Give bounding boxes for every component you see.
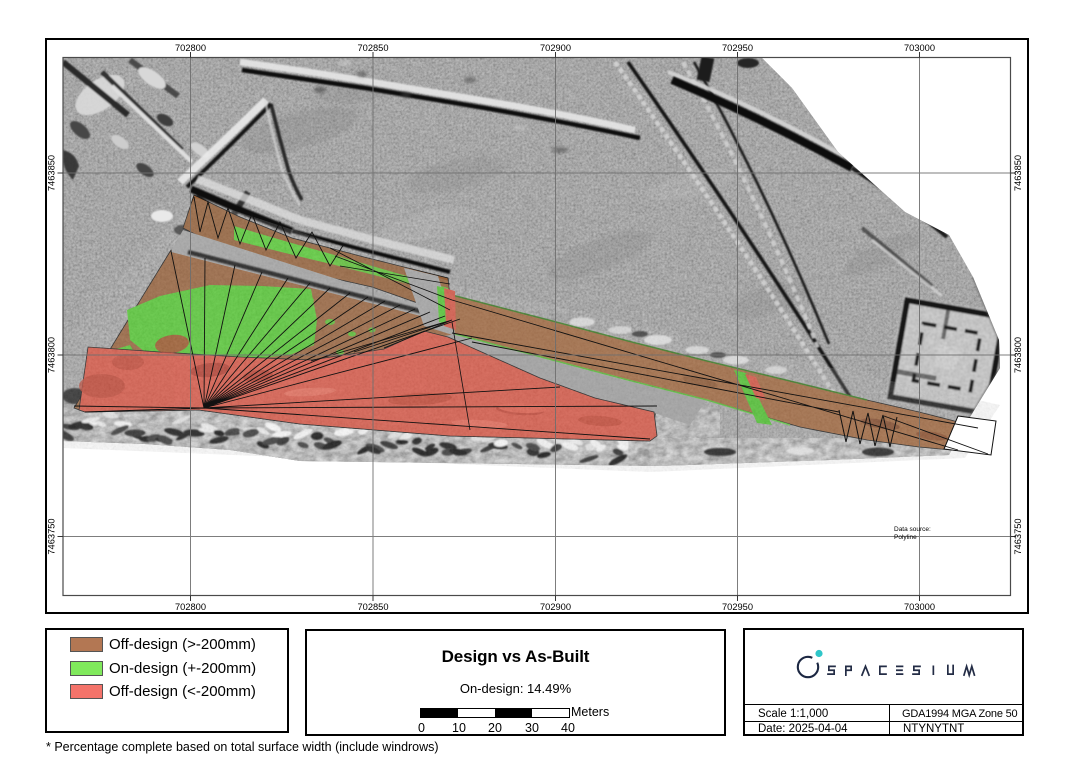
svg-text:7463850: 7463850 <box>47 155 57 191</box>
svg-text:702900: 702900 <box>540 602 571 612</box>
svg-text:702950: 702950 <box>722 602 753 612</box>
svg-text:702850: 702850 <box>357 43 388 53</box>
svg-text:702800: 702800 <box>175 602 206 612</box>
svg-text:7463800: 7463800 <box>1013 337 1023 373</box>
svg-text:703000: 703000 <box>904 43 935 53</box>
svg-text:703000: 703000 <box>904 602 935 612</box>
svg-text:Polyline: Polyline <box>894 534 917 541</box>
svg-text:7463750: 7463750 <box>1013 518 1023 554</box>
svg-text:Data source:: Data source: <box>894 526 931 533</box>
svg-text:702950: 702950 <box>722 43 753 53</box>
svg-text:702850: 702850 <box>357 602 388 612</box>
svg-text:7463850: 7463850 <box>1013 155 1023 191</box>
svg-text:702900: 702900 <box>540 43 571 53</box>
svg-text:7463800: 7463800 <box>47 337 57 373</box>
svg-text:702800: 702800 <box>175 43 206 53</box>
svg-text:7463750: 7463750 <box>47 518 57 554</box>
